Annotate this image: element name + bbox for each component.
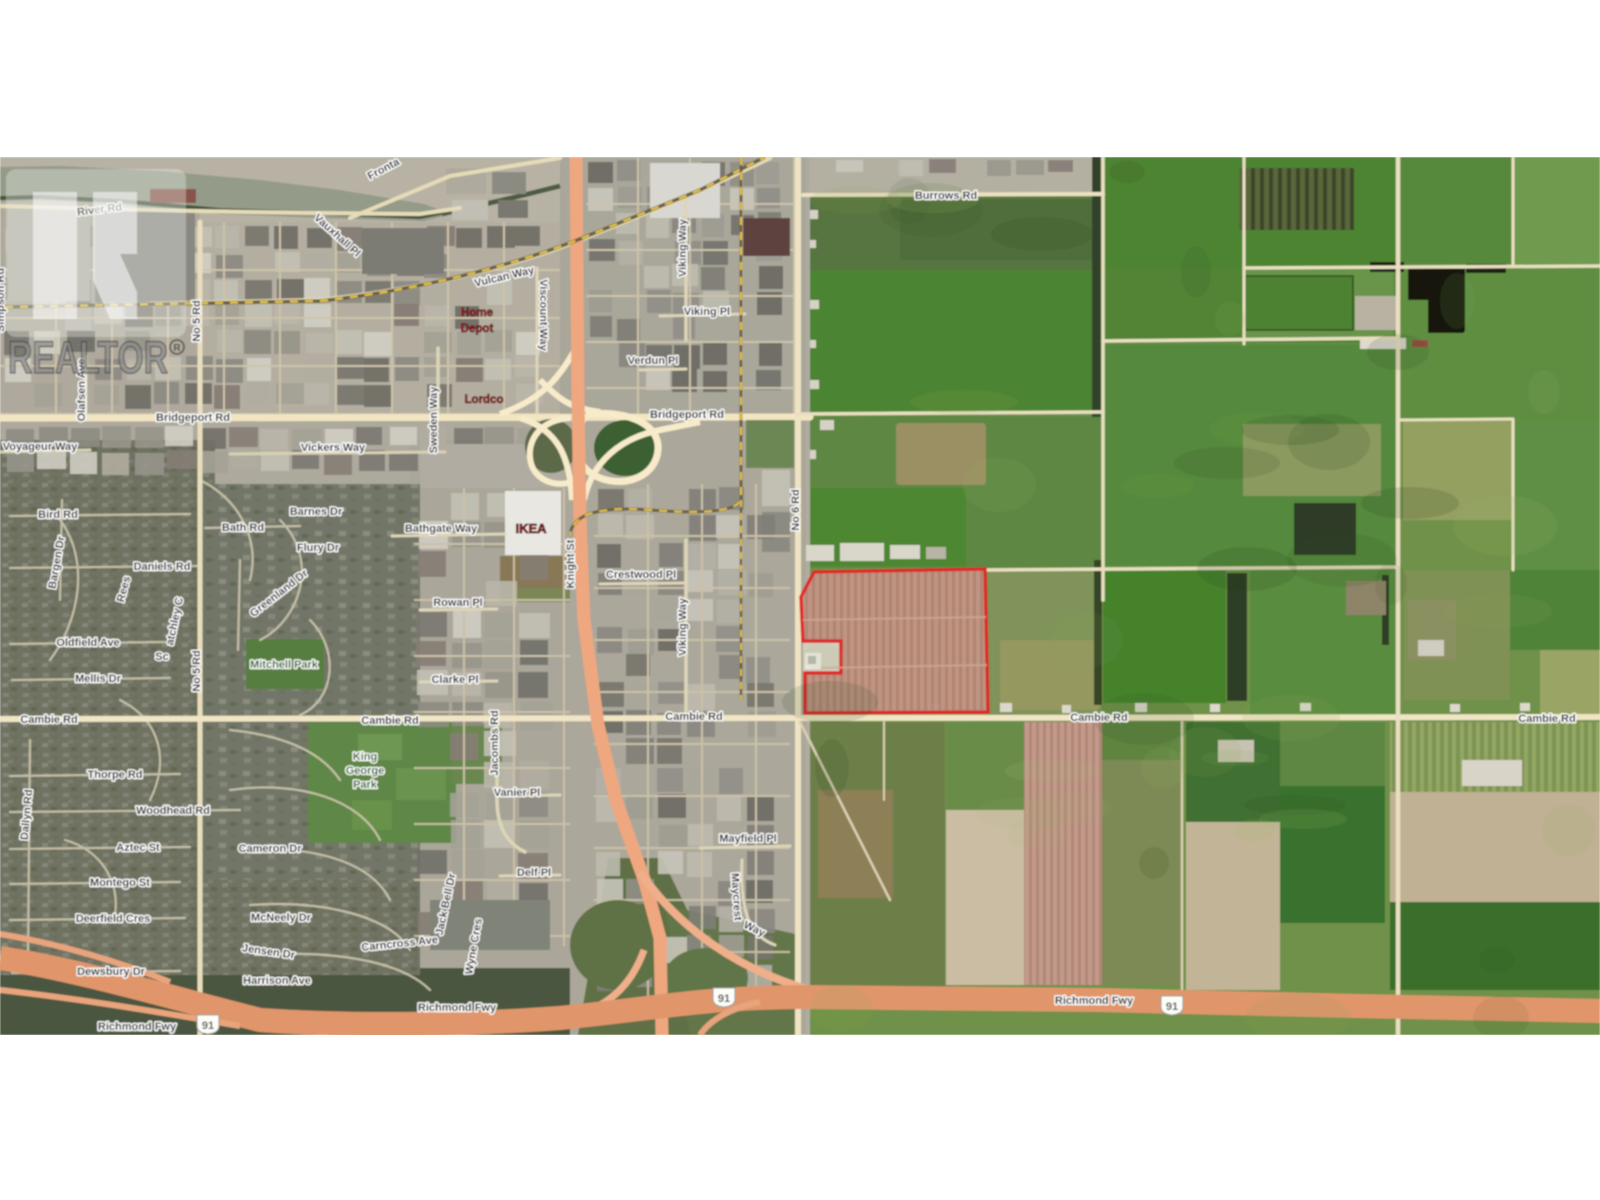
svg-text:Cambie Rd: Cambie Rd xyxy=(1518,713,1575,725)
svg-text:Bridgeport Rd: Bridgeport Rd xyxy=(650,409,724,421)
svg-text:Barnes Dr: Barnes Dr xyxy=(290,506,343,518)
svg-text:Bathgate Way: Bathgate Way xyxy=(405,523,478,535)
svg-text:Sc: Sc xyxy=(155,651,168,663)
svg-text:Vickers Way: Vickers Way xyxy=(301,442,366,454)
svg-text:Aztec St: Aztec St xyxy=(116,842,160,854)
svg-text:Delf Pl: Delf Pl xyxy=(517,867,551,879)
svg-text:King: King xyxy=(353,751,377,763)
svg-text:Flury Dr: Flury Dr xyxy=(297,542,340,554)
svg-text:Home: Home xyxy=(461,307,493,319)
svg-text:Oldfield Ave: Oldfield Ave xyxy=(56,637,119,649)
svg-text:Viking Way: Viking Way xyxy=(677,597,689,656)
svg-text:No 6 Rd: No 6 Rd xyxy=(790,489,802,531)
svg-text:REALTOR: REALTOR xyxy=(8,332,168,383)
svg-text:Verdun Pl: Verdun Pl xyxy=(628,355,679,367)
svg-text:Park: Park xyxy=(353,779,378,791)
svg-text:Viscount Way: Viscount Way xyxy=(537,279,549,351)
svg-text:Harrison Ave: Harrison Ave xyxy=(243,975,311,987)
svg-text:Lordco: Lordco xyxy=(465,394,504,406)
svg-text:Cambie Rd: Cambie Rd xyxy=(20,714,77,726)
svg-text:Mitchell Park: Mitchell Park xyxy=(250,659,319,671)
svg-text:Clarke Pl: Clarke Pl xyxy=(431,674,478,686)
svg-text:Mellis Dr: Mellis Dr xyxy=(75,673,122,685)
svg-text:Viking Way: Viking Way xyxy=(677,218,689,277)
svg-text:91: 91 xyxy=(718,993,730,1005)
svg-text:Mayfield Pl: Mayfield Pl xyxy=(719,833,776,845)
svg-text:No 5 Rd: No 5 Rd xyxy=(191,300,203,342)
svg-text:Thorpe Rd: Thorpe Rd xyxy=(88,769,143,781)
svg-text:Woodhead Rd: Woodhead Rd xyxy=(136,805,210,817)
svg-text:Bird Rd: Bird Rd xyxy=(38,509,78,521)
svg-text:McNeely Dr: McNeely Dr xyxy=(251,912,312,924)
svg-text:Burrows Rd: Burrows Rd xyxy=(915,190,977,202)
svg-text:Bath Rd: Bath Rd xyxy=(222,522,264,534)
svg-text:Simpson Rd: Simpson Rd xyxy=(0,268,7,332)
svg-text:No 5 Rd: No 5 Rd xyxy=(191,650,203,692)
svg-text:Dewsbury Dr: Dewsbury Dr xyxy=(77,966,146,978)
svg-text:Cambie Rd: Cambie Rd xyxy=(1070,712,1127,724)
svg-text:Richmond Fwy: Richmond Fwy xyxy=(418,1002,497,1014)
svg-text:Knight St: Knight St xyxy=(565,539,577,588)
svg-text:Sweden Way: Sweden Way xyxy=(428,386,440,454)
svg-text:Richmond Fwy: Richmond Fwy xyxy=(98,1021,177,1033)
svg-text:Voyageur Way: Voyageur Way xyxy=(3,441,78,453)
svg-text:Crestwood Pl: Crestwood Pl xyxy=(606,569,676,581)
svg-text:Richmond Fwy: Richmond Fwy xyxy=(1055,995,1134,1007)
svg-text:IKEA: IKEA xyxy=(515,521,547,536)
svg-text:Cambie Rd: Cambie Rd xyxy=(361,715,418,727)
svg-text:Deerfield Cres: Deerfield Cres xyxy=(76,913,151,925)
svg-text:Rowan Pl: Rowan Pl xyxy=(433,597,483,609)
svg-text:Jacombs Rd: Jacombs Rd xyxy=(489,710,501,775)
svg-text:George: George xyxy=(346,765,385,777)
svg-text:Viking Pl: Viking Pl xyxy=(684,306,730,318)
svg-text:Cameron Dr: Cameron Dr xyxy=(239,843,303,855)
svg-text:Daniels Rd: Daniels Rd xyxy=(134,561,191,573)
svg-text:91: 91 xyxy=(202,1020,214,1032)
svg-text:Cambie Rd: Cambie Rd xyxy=(665,711,722,723)
svg-text:Vanier Pl: Vanier Pl xyxy=(494,787,540,799)
svg-text:R: R xyxy=(173,343,181,354)
svg-text:Bridgeport Rd: Bridgeport Rd xyxy=(156,412,230,424)
svg-text:91: 91 xyxy=(1166,1001,1178,1013)
svg-text:Depot: Depot xyxy=(461,323,494,335)
svg-text:Montego St: Montego St xyxy=(90,877,150,889)
